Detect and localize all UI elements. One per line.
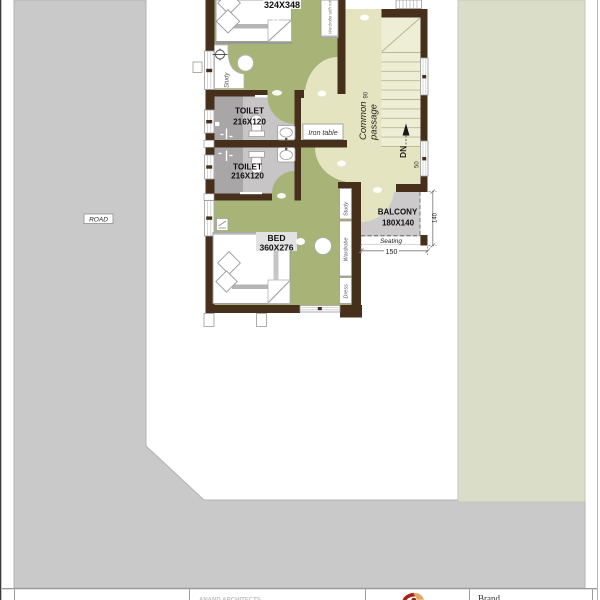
svg-text:150: 150	[386, 249, 398, 256]
svg-text:TOILET: TOILET	[233, 163, 262, 172]
svg-text:Study: Study	[344, 201, 350, 216]
svg-text:passage: passage	[369, 104, 380, 141]
svg-text:324X348: 324X348	[264, 0, 300, 10]
svg-text:Study: Study	[225, 72, 231, 88]
svg-text:Wardrobe: Wardrobe	[344, 237, 350, 261]
svg-text:50: 50	[415, 161, 421, 168]
svg-text:BALCONY: BALCONY	[378, 208, 418, 217]
svg-text:216X120: 216X120	[231, 172, 264, 181]
svg-text:DN: DN	[398, 146, 408, 158]
svg-text:Dress: Dress	[344, 284, 350, 299]
svg-text:ROAD: ROAD	[89, 217, 108, 224]
svg-text:Seating: Seating	[380, 238, 402, 245]
svg-text:90: 90	[364, 91, 370, 98]
svg-text:TOILET: TOILET	[235, 107, 264, 116]
svg-text:216X120: 216X120	[233, 118, 266, 127]
svg-text:140: 140	[433, 212, 439, 223]
svg-text:Wardrobe with mirror: Wardrobe with mirror	[328, 0, 333, 34]
svg-text:180X140: 180X140	[382, 219, 415, 228]
svg-text:BED: BED	[268, 233, 286, 243]
svg-text:Common: Common	[358, 101, 369, 140]
svg-text:Iron table: Iron table	[308, 130, 337, 137]
svg-text:Brand: Brand	[478, 594, 500, 600]
